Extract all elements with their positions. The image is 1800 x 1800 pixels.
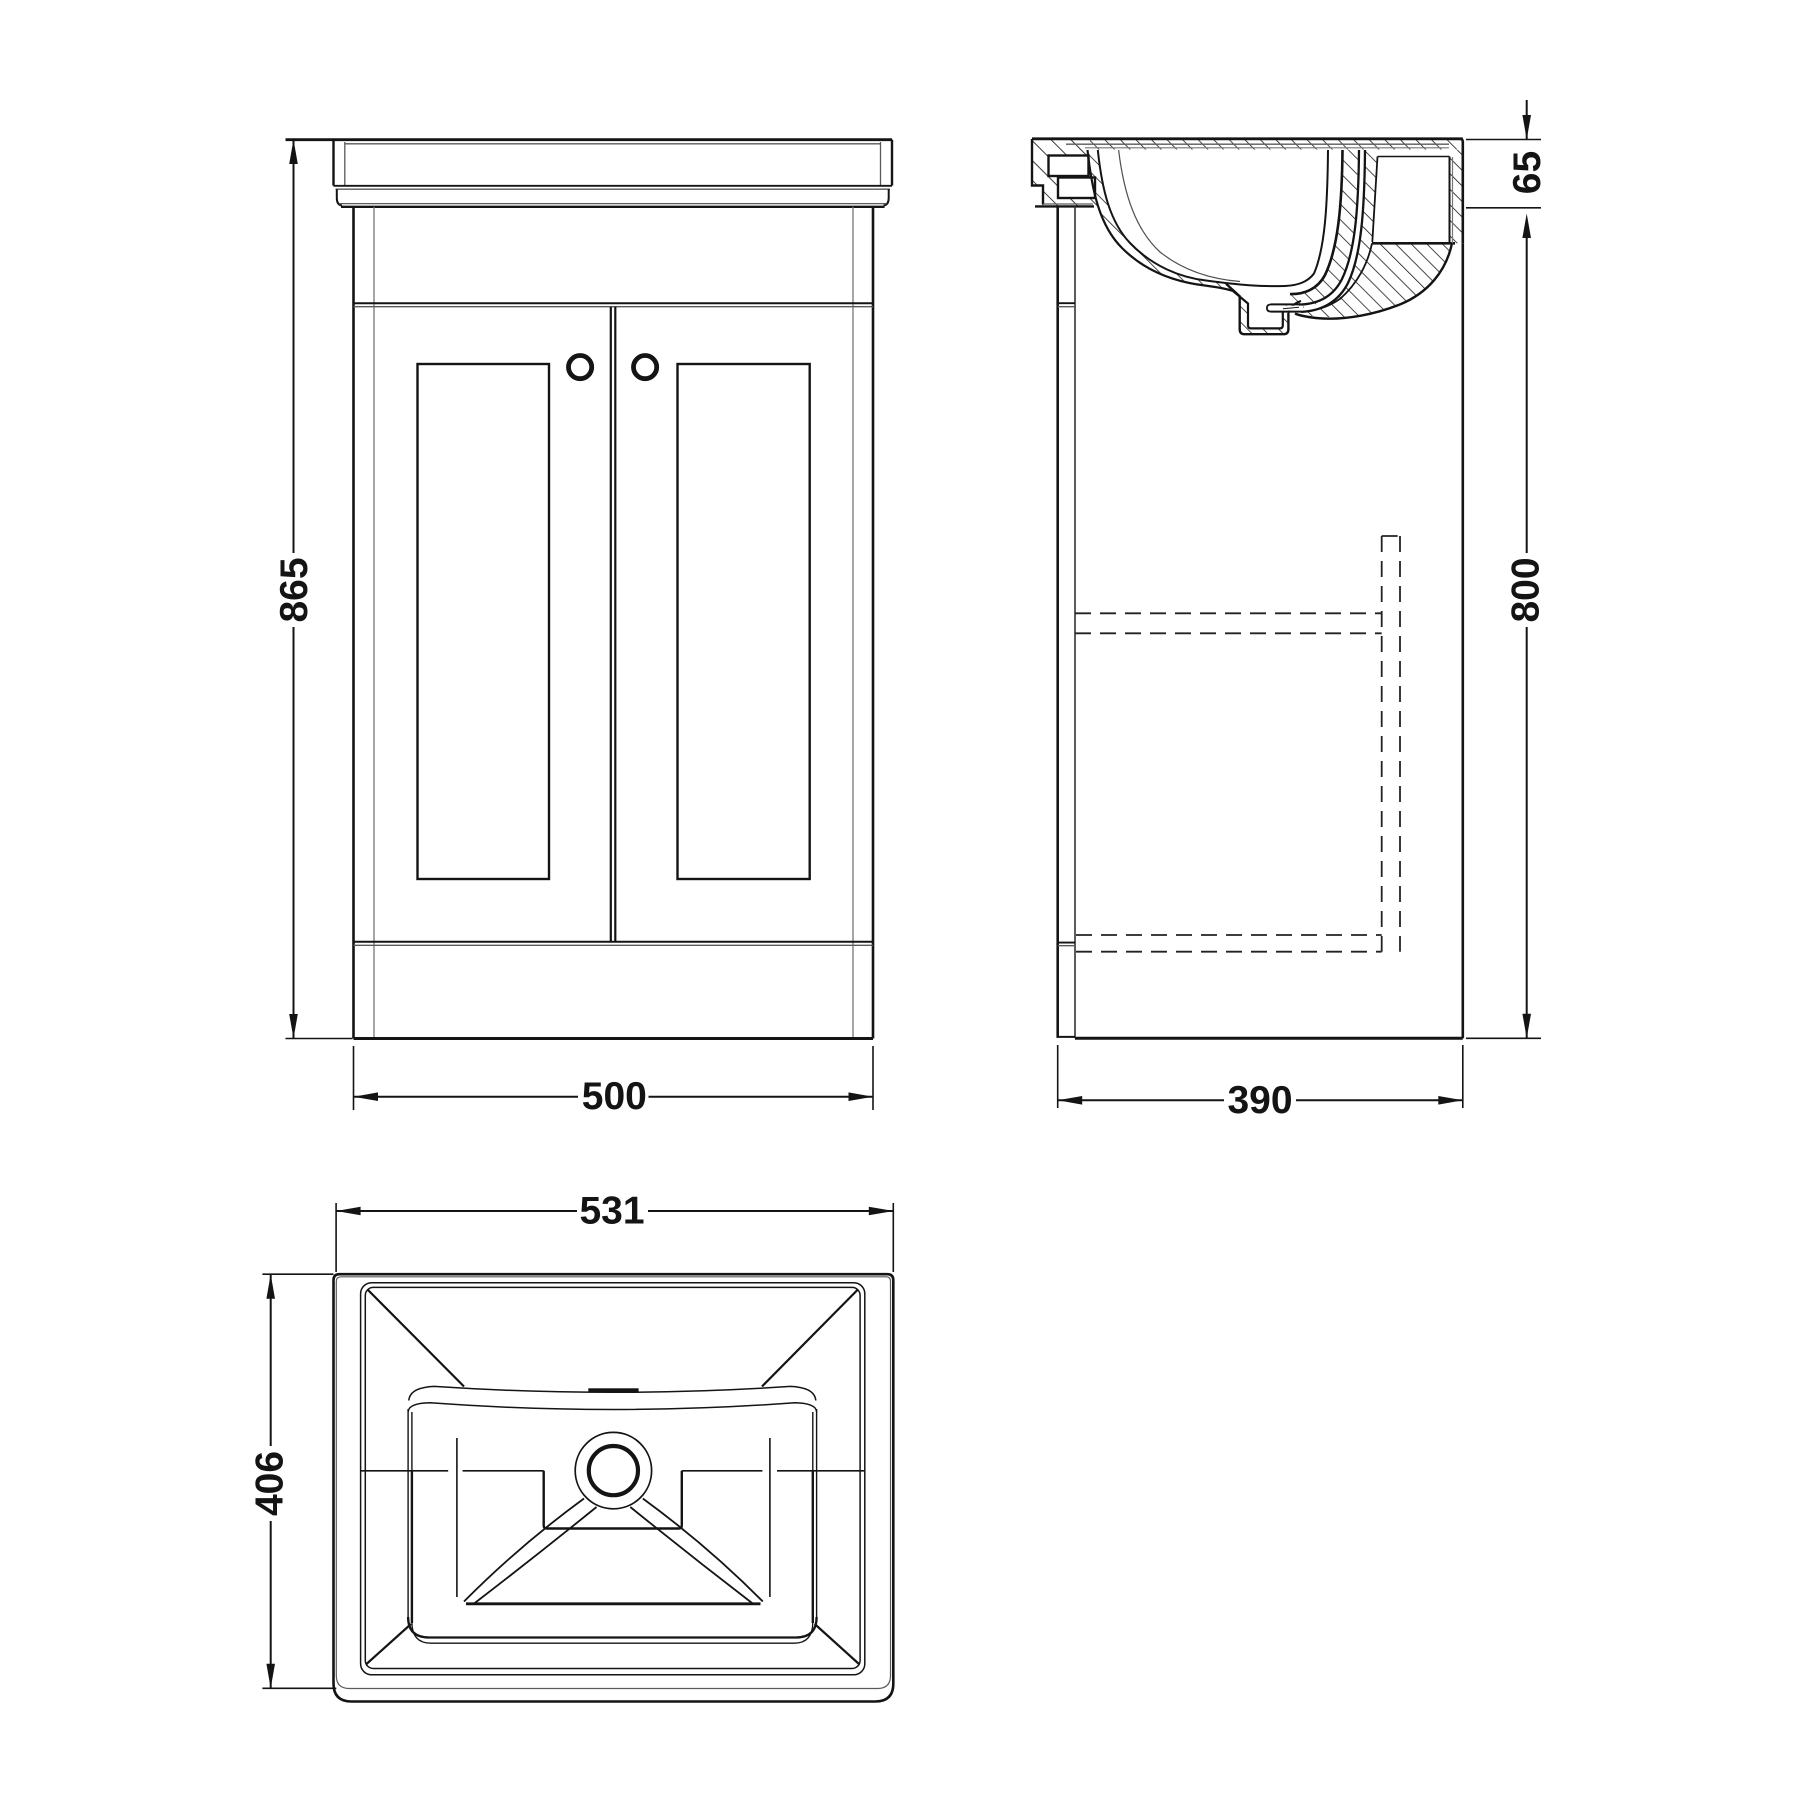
- svg-text:390: 390: [1227, 1079, 1292, 1122]
- svg-text:800: 800: [1505, 557, 1548, 622]
- svg-text:531: 531: [579, 1190, 644, 1233]
- svg-text:865: 865: [273, 557, 316, 622]
- svg-text:406: 406: [249, 1451, 292, 1516]
- svg-text:500: 500: [582, 1075, 647, 1118]
- svg-text:65: 65: [1506, 151, 1549, 194]
